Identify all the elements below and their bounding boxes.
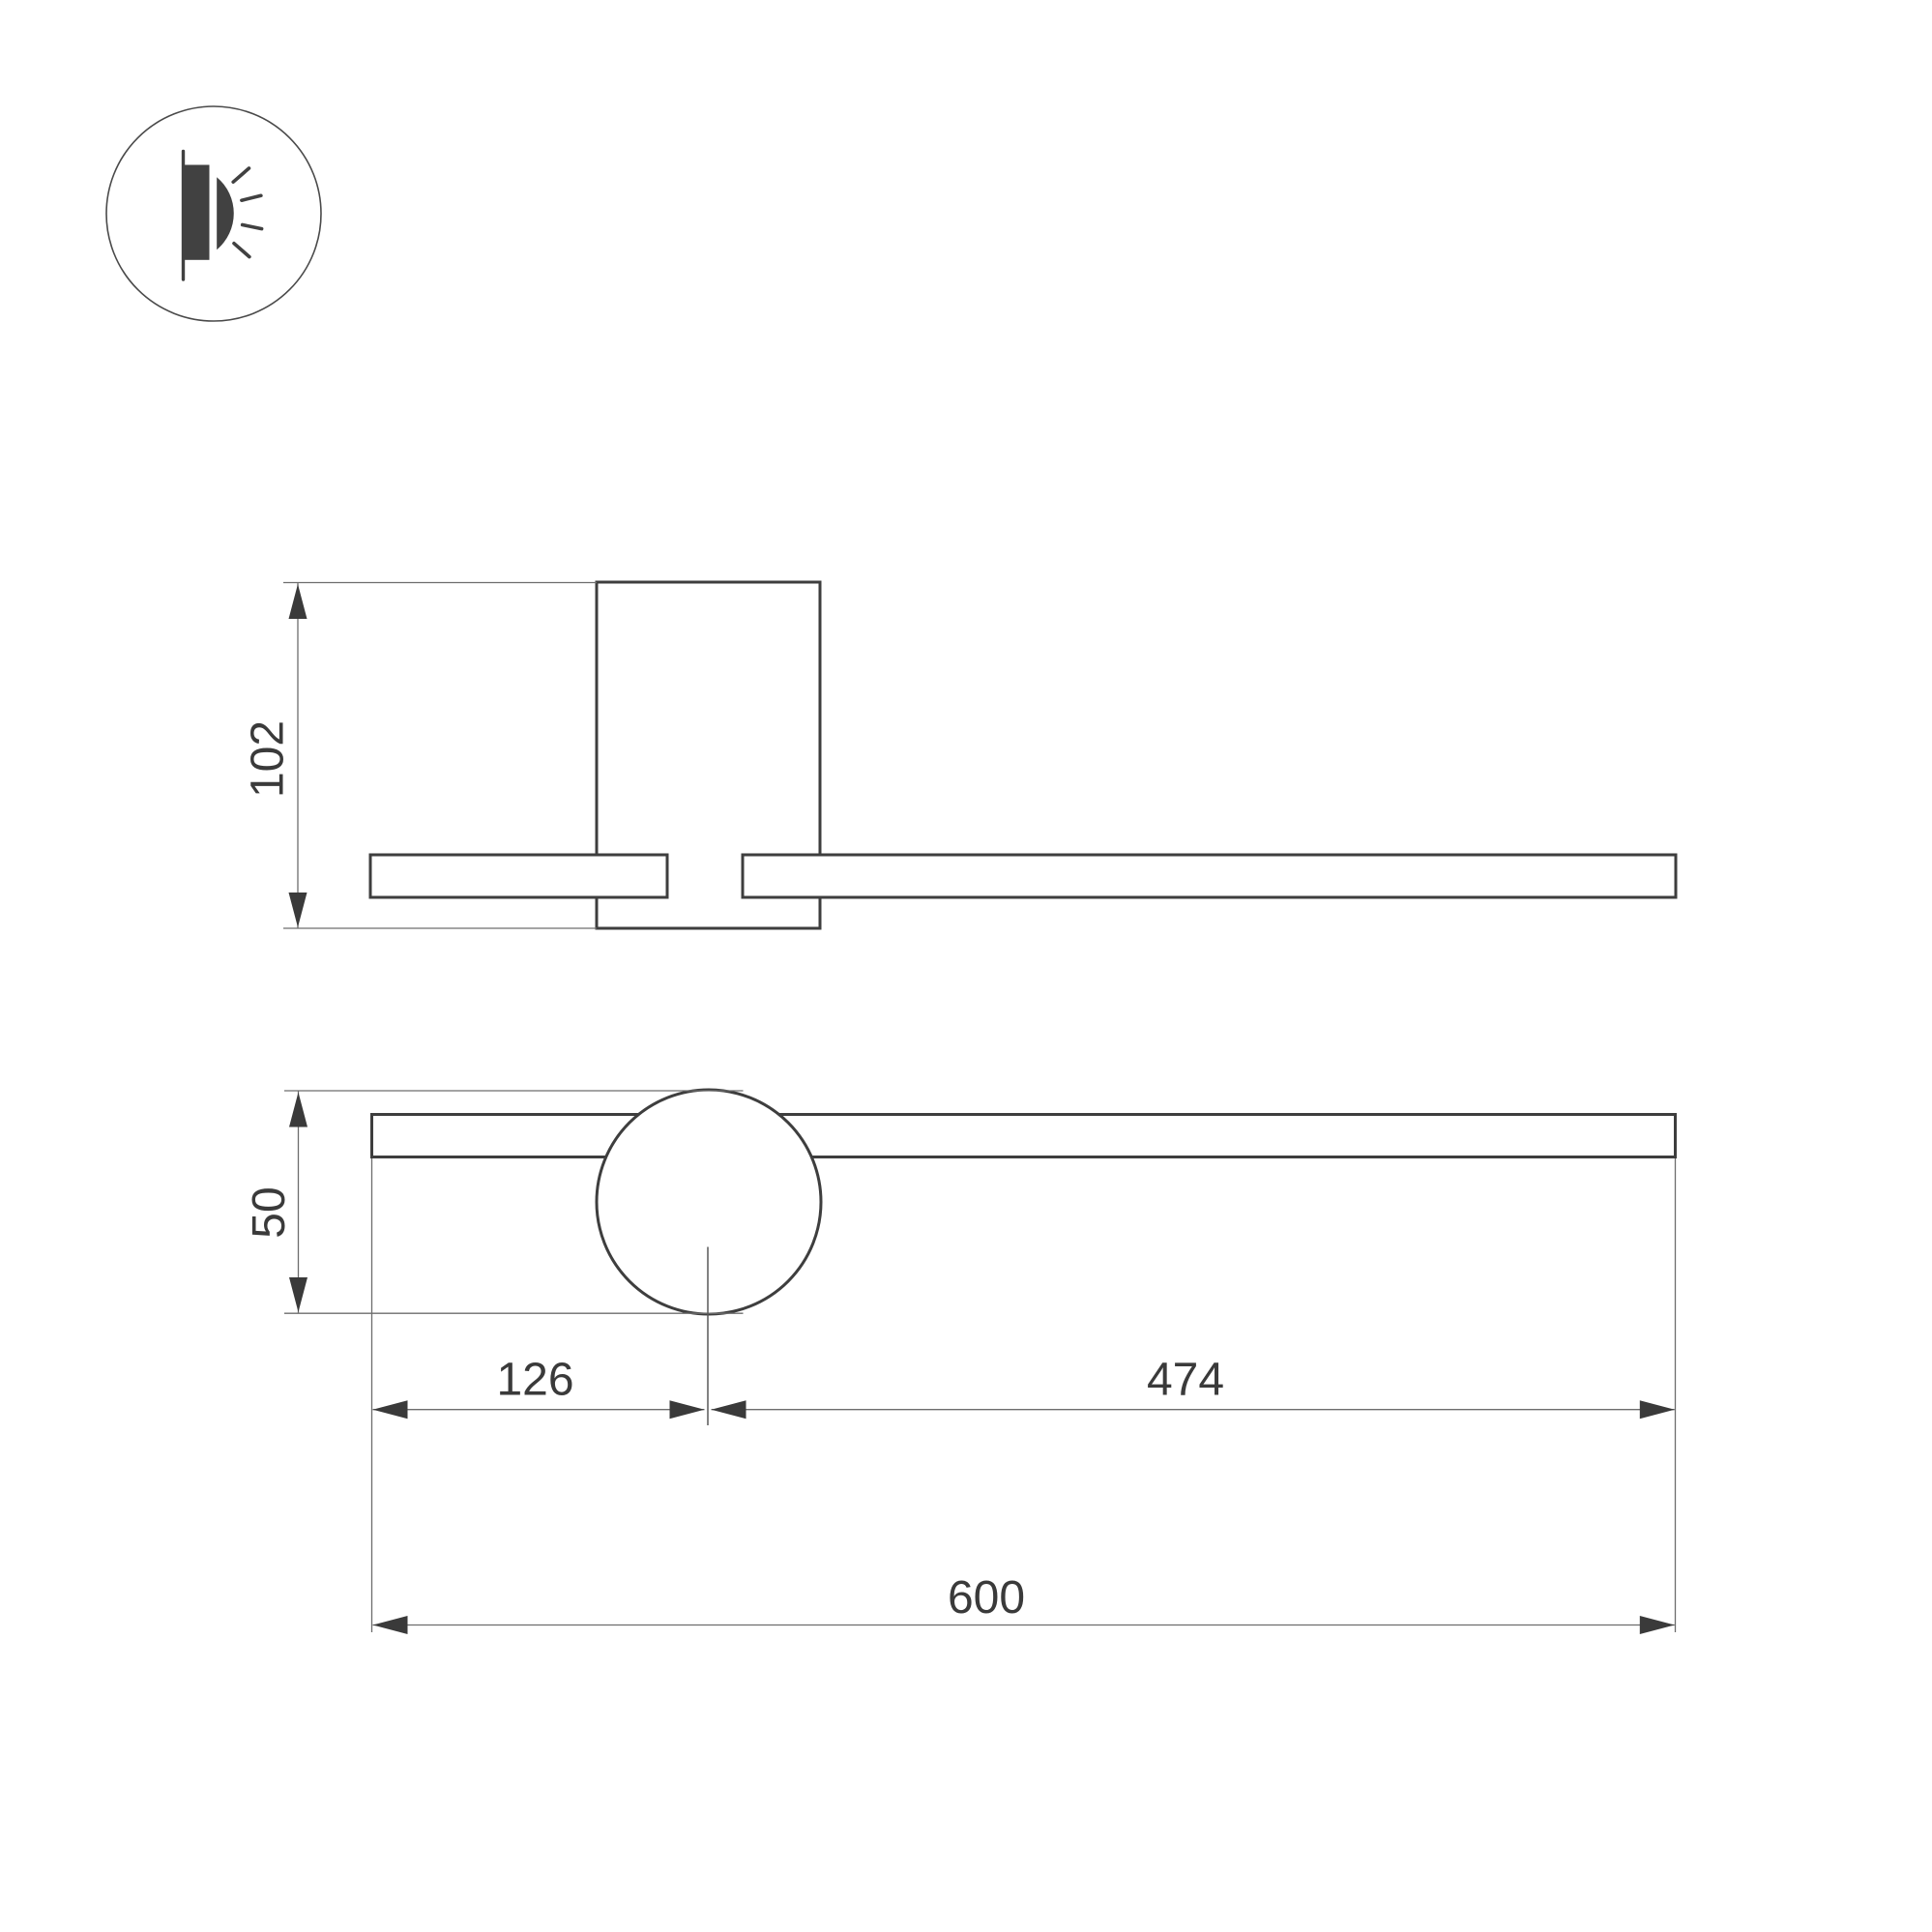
svg-text:474: 474 <box>1147 1355 1224 1406</box>
svg-text:600: 600 <box>948 1572 1025 1624</box>
svg-text:126: 126 <box>496 1355 573 1406</box>
svg-text:50: 50 <box>244 1186 295 1238</box>
svg-text:102: 102 <box>243 720 294 798</box>
